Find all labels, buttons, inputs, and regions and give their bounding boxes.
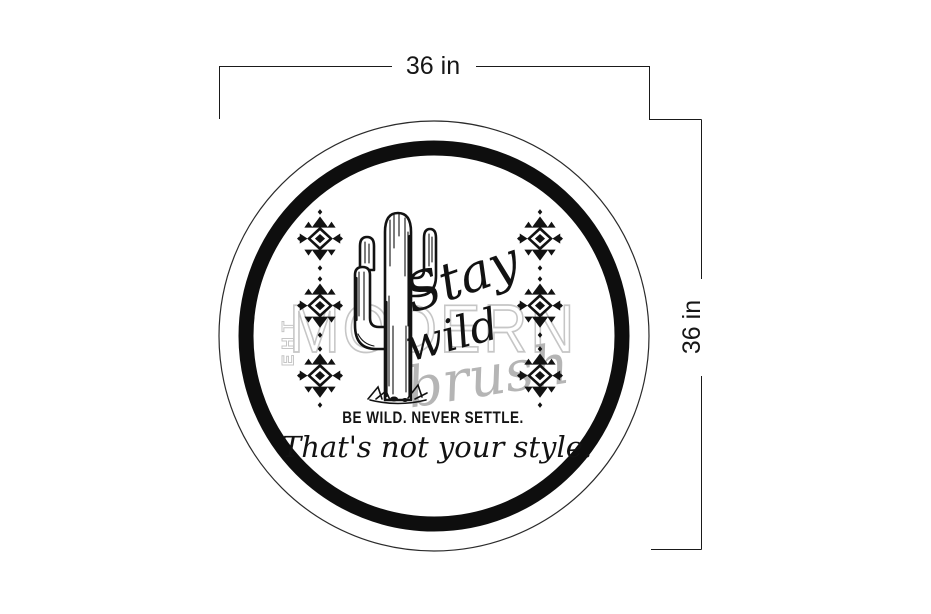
tagline-primary: BE WILD. NEVER SETTLE. [310,409,556,428]
aztec-motif-left-2 [297,276,343,338]
height-dimension-label: 36 in [678,284,708,370]
aztec-motif-right-3 [517,346,563,408]
width-dimension-label: 36 in [391,52,475,80]
mockup-canvas: T H E MODERN brush [0,0,931,614]
aztec-motif-left-3 [297,346,343,408]
aztec-motif-left-1 [297,209,343,271]
tagline-script: That's not your style. [257,430,617,465]
